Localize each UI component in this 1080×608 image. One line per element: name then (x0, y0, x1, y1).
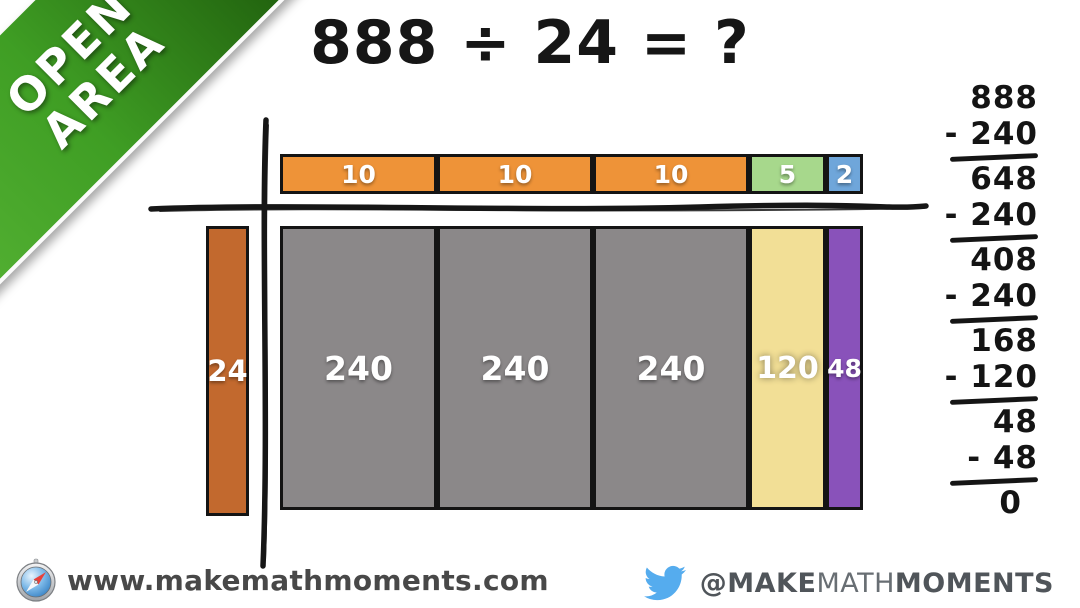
title-equation: 888 ÷ 24 = ? (290, 8, 770, 78)
box-label: 2 (836, 160, 853, 189)
box-label: 240 (481, 349, 550, 388)
box-label: 10 (498, 160, 533, 189)
subtraction-subtrahend: - 48 (967, 441, 1038, 475)
footer-website: www.makemathmoments.com (14, 558, 549, 602)
subtraction-minuend: 648 (970, 162, 1038, 196)
website-url: www.makemathmoments.com (67, 564, 549, 597)
box-label: 10 (341, 160, 376, 189)
compass-browser-icon (14, 558, 58, 602)
product-box-240-c: 240 (593, 226, 749, 510)
handle-part-at-make: @MAKE (700, 568, 817, 599)
subtraction-minuend: 168 (970, 324, 1038, 358)
product-box-240-a: 240 (280, 226, 437, 510)
subtraction-subtrahend: - 120 (945, 360, 1038, 394)
box-label: 48 (827, 354, 862, 383)
footer-twitter: @MAKEMATHMOMENTS (640, 562, 1054, 604)
subtraction-remainder: 0 (999, 486, 1022, 520)
quotient-box-10-c: 10 (593, 154, 749, 194)
box-label: 240 (324, 349, 393, 388)
box-label: 5 (779, 160, 796, 189)
quotient-box-10-b: 10 (437, 154, 593, 194)
slide: OPEN AREA 888 ÷ 24 = ? 10 10 10 5 2 (0, 0, 1080, 608)
handle-part-math: MATH (816, 568, 894, 599)
box-label: 240 (637, 349, 706, 388)
product-box-120: 120 (749, 226, 826, 510)
quotient-box-2: 2 (826, 154, 863, 194)
handle-part-moments: MOMENTS (895, 568, 1054, 599)
subtraction-rule (950, 477, 1038, 486)
quotient-box-10-a: 10 (280, 154, 437, 194)
subtraction-subtrahend: - 240 (945, 279, 1038, 313)
subtraction-subtrahend: - 240 (945, 117, 1038, 151)
subtraction-minuend: 48 (993, 405, 1038, 439)
divisor-box-24: 24 (206, 226, 249, 516)
subtraction-subtrahend: - 240 (945, 198, 1038, 232)
product-row: 240 240 240 120 48 (280, 226, 863, 510)
twitter-handle: @MAKEMATHMOMENTS (700, 568, 1054, 599)
ribbon-text: OPEN AREA (0, 0, 176, 159)
product-box-240-b: 240 (437, 226, 593, 510)
subtraction-minuend: 888 (970, 81, 1038, 115)
twitter-bird-icon (640, 562, 690, 604)
subtraction-work: 888 - 240 648 - 240 408 - 240 168 - 120 … (946, 81, 1038, 522)
box-label: 24 (207, 354, 247, 388)
open-area-ribbon: OPEN AREA (0, 0, 326, 326)
quotient-row: 10 10 10 5 2 (280, 154, 863, 194)
quotient-box-5: 5 (749, 154, 826, 194)
product-box-48: 48 (826, 226, 863, 510)
box-label: 120 (756, 351, 819, 386)
subtraction-minuend: 408 (970, 243, 1038, 277)
box-label: 10 (654, 160, 689, 189)
